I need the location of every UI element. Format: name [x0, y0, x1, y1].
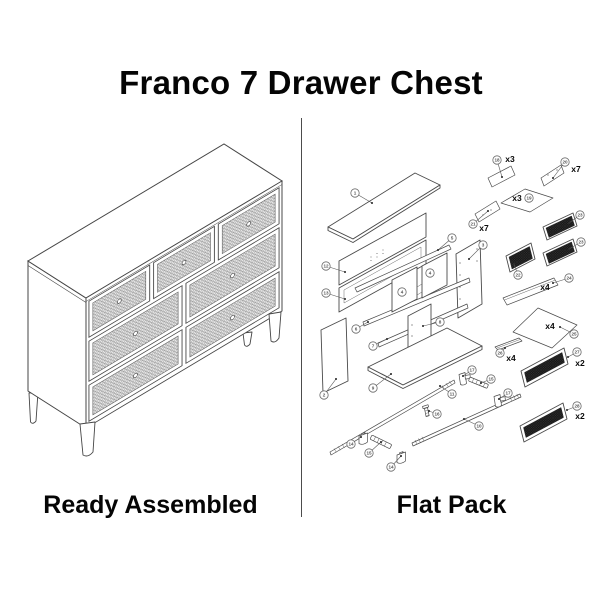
- part-callout: 28x2: [566, 402, 585, 421]
- flatpack-dowel-d: [468, 377, 488, 388]
- svg-text:28: 28: [574, 404, 580, 409]
- part-callout: 26x4: [496, 347, 516, 363]
- part-callout: 6: [352, 321, 369, 333]
- chest-leg-front-right: [269, 312, 281, 342]
- svg-text:5: 5: [451, 236, 454, 241]
- svg-text:22: 22: [515, 273, 521, 278]
- svg-text:23: 23: [578, 240, 584, 245]
- quantity-label: x7: [571, 164, 581, 174]
- quantity-label: x4: [545, 321, 555, 331]
- caption-ready-assembled: Ready Assembled: [0, 491, 301, 520]
- quantity-label: x2: [575, 411, 585, 421]
- svg-text:17: 17: [505, 391, 511, 396]
- svg-text:19: 19: [526, 196, 532, 201]
- chest-illustration: [0, 118, 301, 478]
- svg-text:21: 21: [470, 222, 476, 227]
- flatpack-small-drawer-front-1: [506, 243, 535, 272]
- flatpack-leg-c: [397, 452, 406, 464]
- quantity-label: x3: [505, 154, 515, 164]
- svg-text:9: 9: [372, 386, 375, 391]
- svg-text:1: 1: [354, 191, 357, 196]
- part-callout: 16: [428, 410, 441, 418]
- svg-text:17: 17: [469, 368, 475, 373]
- svg-text:4: 4: [429, 271, 432, 276]
- caption-flat-pack: Flat Pack: [301, 491, 602, 520]
- svg-text:27: 27: [574, 350, 580, 355]
- svg-text:14: 14: [388, 465, 394, 470]
- quantity-label: x3: [512, 193, 522, 203]
- svg-text:24: 24: [566, 276, 572, 281]
- quantity-label: x7: [479, 223, 489, 233]
- part-callout: 15: [480, 375, 495, 384]
- svg-text:13: 13: [323, 291, 329, 296]
- svg-text:6: 6: [355, 327, 358, 332]
- part-callout: 27x2: [567, 348, 585, 368]
- part-callout: 10: [463, 418, 483, 430]
- svg-text:2: 2: [323, 393, 326, 398]
- svg-text:15: 15: [366, 451, 372, 456]
- svg-text:4: 4: [401, 290, 404, 295]
- svg-text:15: 15: [488, 377, 494, 382]
- flatpack-small-drawer-front-2: [543, 213, 577, 240]
- part-callout: 4: [426, 269, 434, 277]
- svg-text:7: 7: [372, 344, 375, 349]
- svg-text:12: 12: [323, 264, 329, 269]
- svg-text:14: 14: [348, 442, 354, 447]
- svg-text:25: 25: [571, 332, 577, 337]
- quantity-label: x2: [575, 358, 585, 368]
- svg-text:26: 26: [497, 351, 503, 356]
- flatpack-stick-x4: [495, 338, 522, 350]
- part-callout: 15: [365, 441, 382, 457]
- part-callout: 4: [398, 288, 406, 296]
- quantity-label: x4: [506, 353, 516, 363]
- svg-text:23: 23: [577, 213, 583, 218]
- svg-text:3: 3: [482, 243, 485, 248]
- svg-text:18: 18: [494, 158, 500, 163]
- flatpack-diagram: 1121353446789211101614151417151718x320x7…: [301, 118, 602, 478]
- flatpack-bracket-a: [459, 373, 470, 386]
- flatpack-side-panel-left: [321, 318, 348, 393]
- flatpack-large-drawer-front-1: [521, 348, 568, 387]
- flatpack-small-drawer-front-3: [543, 239, 577, 266]
- quantity-label: x4: [540, 282, 550, 292]
- infographic-canvas: Franco 7 Drawer Chest: [0, 0, 602, 602]
- chest-leg-front-left: [80, 422, 95, 456]
- svg-text:16: 16: [434, 412, 440, 417]
- svg-text:20: 20: [562, 160, 568, 165]
- flatpack-narrow-panel-x4: [503, 278, 558, 305]
- svg-text:11: 11: [450, 392, 455, 397]
- part-callout: 1: [351, 189, 373, 204]
- page-title: Franco 7 Drawer Chest: [0, 64, 602, 102]
- svg-text:8: 8: [439, 320, 442, 325]
- chest-leg-back-right: [243, 332, 252, 346]
- svg-text:10: 10: [476, 424, 482, 429]
- flatpack-large-drawer-front-2: [520, 403, 567, 442]
